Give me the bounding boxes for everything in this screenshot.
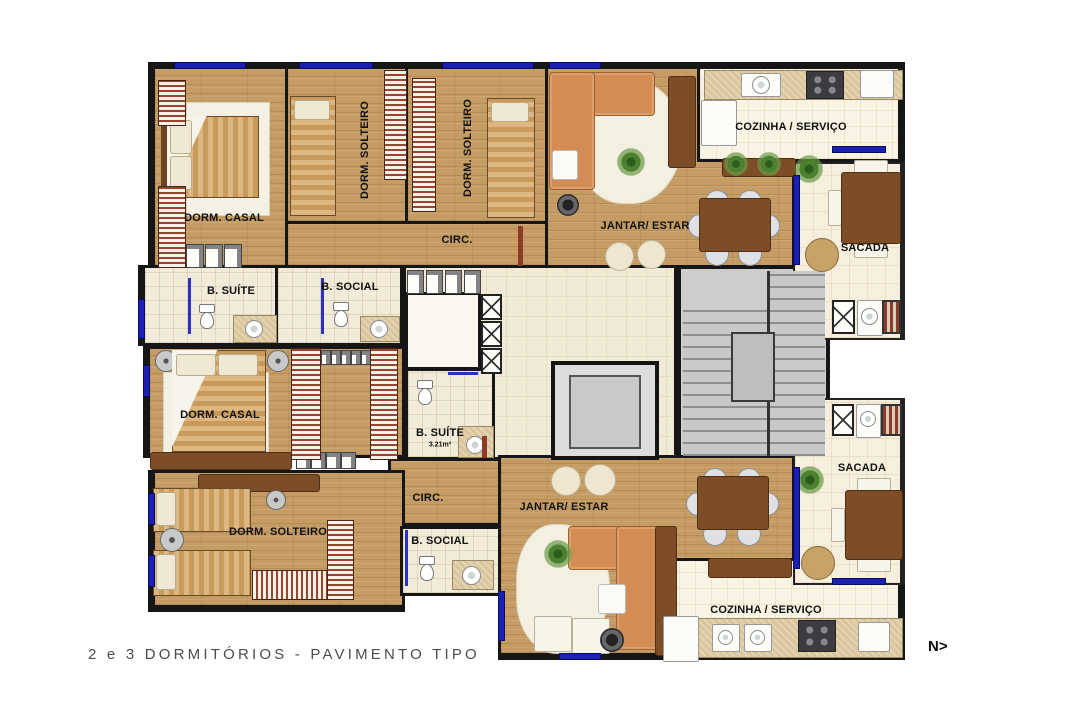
sink-icon xyxy=(860,411,876,427)
sink-icon xyxy=(462,566,481,585)
room-label-b-suite-top: B. SUÍTE xyxy=(207,285,255,297)
pillow xyxy=(294,100,330,120)
side-table xyxy=(801,546,835,580)
sink-icon xyxy=(752,76,770,94)
wardrobe xyxy=(327,520,354,600)
shoe-rack-icon xyxy=(186,244,204,268)
window xyxy=(833,147,885,152)
sink-icon xyxy=(750,630,765,645)
wardrobe xyxy=(291,348,321,460)
sofa-pillow xyxy=(598,584,626,614)
sink-icon xyxy=(245,320,263,338)
door-frame xyxy=(482,436,487,458)
balcony-table xyxy=(841,172,901,244)
toilet-icon xyxy=(333,302,349,328)
armchair xyxy=(534,616,572,652)
tv-cabinet xyxy=(668,76,696,168)
window xyxy=(443,63,533,68)
pillow xyxy=(176,354,216,376)
pillow xyxy=(170,156,192,190)
window xyxy=(149,494,154,524)
shoe-rack-icon xyxy=(351,350,361,365)
stove-icon xyxy=(806,71,844,99)
room-label-dorm-casal-top: DORM. CASAL xyxy=(184,212,264,224)
bed-headboard xyxy=(161,116,167,194)
side-table xyxy=(805,238,839,272)
shoe-rack-icon xyxy=(331,350,341,365)
plant-icon xyxy=(617,148,645,176)
shoe-rack-icon xyxy=(321,350,331,365)
wardrobe xyxy=(384,70,407,180)
door-frame xyxy=(518,226,523,266)
room-label-dorm-solteiro-b: DORM. SOLTEIRO xyxy=(462,99,474,197)
desk-chair xyxy=(266,490,286,510)
pouf xyxy=(584,464,616,496)
shaft-icon xyxy=(481,321,502,347)
toilet-icon xyxy=(419,556,435,582)
laundry-tank xyxy=(858,622,890,652)
toilet-icon xyxy=(417,380,433,406)
sofa-pillow xyxy=(552,150,578,180)
balcony-table xyxy=(845,490,903,560)
shoe-rack-icon xyxy=(445,270,462,294)
pillow xyxy=(156,554,176,590)
wardrobe xyxy=(412,78,436,212)
window xyxy=(560,654,600,659)
room-label-cozinha-bottom: COZINHA / SERVIÇO xyxy=(710,604,822,616)
shoe-rack-icon xyxy=(407,270,424,294)
balcony-chair xyxy=(831,508,845,542)
fridge-icon xyxy=(663,616,699,662)
window xyxy=(499,592,504,640)
laundry-tank xyxy=(860,70,894,98)
window xyxy=(794,468,799,568)
plant-icon xyxy=(795,155,823,183)
sink-icon xyxy=(718,630,733,645)
room-label-circ-bottom: CIRC. xyxy=(413,492,444,504)
room-label-sacada-bottom: SACADA xyxy=(838,462,886,474)
kitchen-island xyxy=(708,558,792,578)
wardrobe xyxy=(158,186,186,268)
pouf xyxy=(551,466,581,496)
window xyxy=(550,63,600,68)
shower-partition xyxy=(405,530,408,586)
plant-icon xyxy=(544,540,572,568)
vent-box-icon xyxy=(832,404,854,436)
shaft-icon xyxy=(481,294,502,320)
elevator-cab xyxy=(569,375,641,449)
toilet-icon xyxy=(199,304,215,330)
stove-icon xyxy=(798,620,836,652)
pouf xyxy=(637,240,666,269)
dining-table xyxy=(697,476,769,530)
pillow xyxy=(491,102,529,122)
wardrobe xyxy=(158,80,186,126)
north-compass: N> xyxy=(928,638,948,655)
plant-icon xyxy=(757,152,781,176)
pillow xyxy=(218,354,258,376)
shoe-rack-icon xyxy=(341,452,356,469)
pillow xyxy=(156,492,176,526)
room-area-b-suite-mid: 3.21m² xyxy=(429,442,451,449)
shoe-rack-icon xyxy=(224,244,242,268)
room-label-circ-top: CIRC. xyxy=(442,234,473,246)
room-label-b-social-top: B. SOCIAL xyxy=(321,281,378,293)
pouf xyxy=(605,242,634,271)
grill-icon xyxy=(882,300,901,334)
room-circ-top xyxy=(285,221,548,268)
window xyxy=(833,579,885,584)
room-label-cozinha-top: COZINHA / SERVIÇO xyxy=(735,121,847,133)
shoe-rack-icon xyxy=(205,244,223,268)
stairs-landing xyxy=(731,332,775,402)
room-storage-white xyxy=(405,292,481,370)
room-label-jantar-top: JANTAR/ ESTAR xyxy=(601,220,690,232)
room-label-dorm-solteiro-a: DORM. SOLTEIRO xyxy=(359,101,371,199)
nightstand xyxy=(267,350,289,372)
window xyxy=(149,556,154,586)
plan-caption: 2 e 3 DORMITÓRIOS - PAVIMENTO TIPO xyxy=(88,646,480,663)
room-label-jantar-bottom: JANTAR/ ESTAR xyxy=(520,501,609,513)
balcony-chair xyxy=(828,190,842,226)
sink-icon xyxy=(861,308,878,325)
nightstand xyxy=(160,528,184,552)
shoe-rack-icon xyxy=(426,270,443,294)
shoe-rack-icon xyxy=(326,452,341,469)
window xyxy=(794,176,799,264)
shoe-rack-icon xyxy=(341,350,351,365)
sink-icon xyxy=(370,320,388,338)
wardrobe xyxy=(252,570,332,600)
dresser xyxy=(150,452,292,470)
wardrobe xyxy=(370,348,398,460)
window xyxy=(300,63,372,68)
window xyxy=(139,300,144,338)
fridge-icon xyxy=(701,100,737,146)
window xyxy=(144,366,149,396)
plant-icon xyxy=(796,466,824,494)
shower-partition xyxy=(188,278,191,334)
shower-partition xyxy=(448,372,478,375)
dining-table xyxy=(699,198,771,252)
vent-box-icon xyxy=(832,300,855,334)
floor-lamp-icon xyxy=(557,194,579,216)
window xyxy=(175,63,245,68)
floor-lamp-icon xyxy=(600,628,624,652)
shaft-icon xyxy=(481,348,502,374)
room-label-dorm-casal-mid: DORM. CASAL xyxy=(180,409,260,421)
shoe-rack-icon xyxy=(464,270,481,294)
floor-plan-page: { "plan": { "caption": "2 e 3 DORMITÓRIO… xyxy=(0,0,1080,720)
grill-icon xyxy=(881,404,902,436)
room-label-sacada-top: SACADA xyxy=(841,242,889,254)
plant-icon xyxy=(724,152,748,176)
balcony-chair xyxy=(857,558,891,572)
room-label-b-suite-mid: B. SUÍTE xyxy=(416,427,464,439)
room-label-dorm-solteiro-bottom: DORM. SOLTEIRO xyxy=(229,526,327,538)
stairs-flight-right xyxy=(770,271,825,456)
room-label-b-social-bottom: B. SOCIAL xyxy=(411,535,468,547)
